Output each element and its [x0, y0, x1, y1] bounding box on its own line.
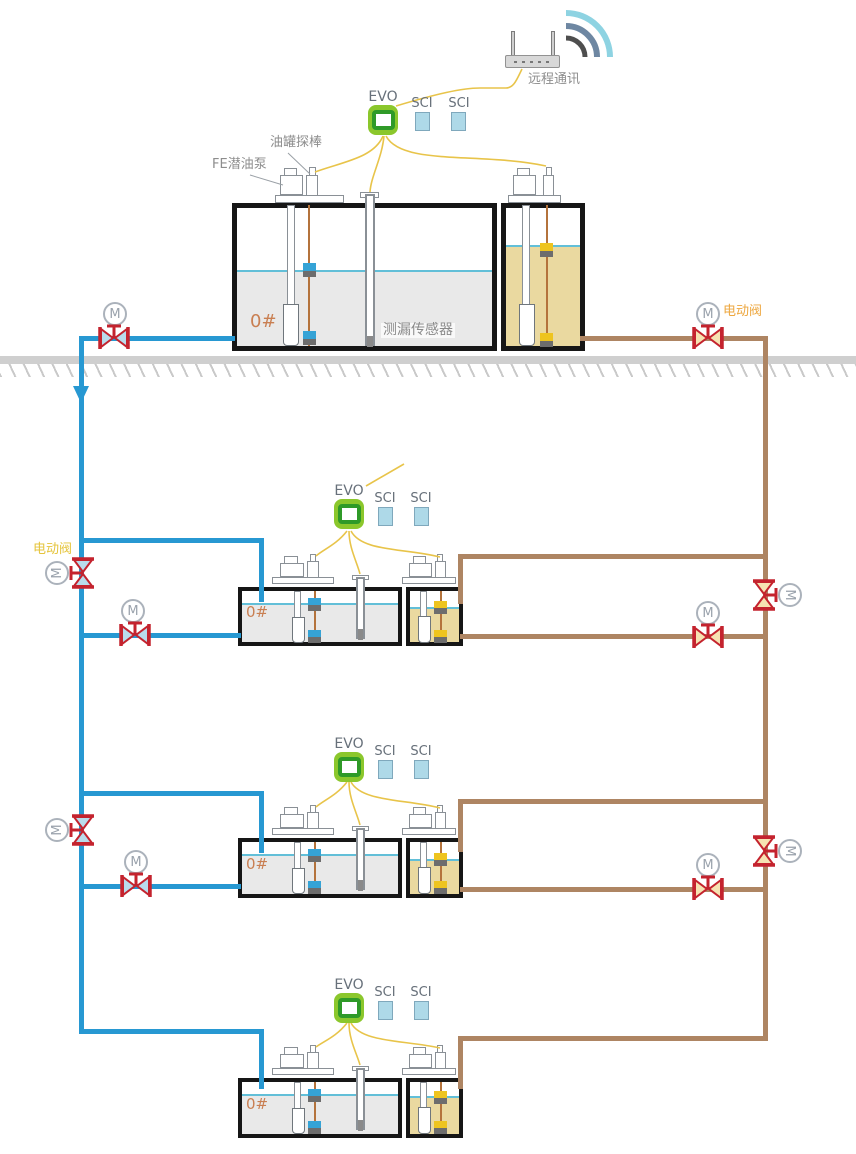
sci-module	[451, 112, 466, 131]
electric-valve	[67, 812, 95, 848]
electric-valve	[96, 322, 132, 350]
evo-screen	[338, 504, 361, 524]
evo-controller	[368, 105, 398, 135]
electric-valve	[117, 619, 153, 647]
evo-controller	[334, 993, 364, 1023]
sci-label: SCI	[371, 492, 399, 506]
sci-module	[378, 760, 393, 779]
cable-evo-leak-sensor	[349, 531, 360, 574]
pointer-line-pump	[250, 175, 283, 185]
remote-comm-label: 远程通讯	[528, 73, 580, 87]
electric-valve	[690, 621, 726, 649]
evo-label: EVO	[332, 737, 366, 752]
electric-valve-label-right: 电动阀	[723, 305, 762, 319]
cable-evo-probe-left	[316, 531, 347, 556]
motor-actuator: M	[45, 561, 69, 585]
cable-evo-leak-sensor	[349, 782, 360, 825]
sci-module	[414, 507, 429, 526]
wifi-arc-inner	[566, 38, 585, 57]
evo-controller	[334, 752, 364, 782]
sci-label: SCI	[371, 745, 399, 759]
evo-label: EVO	[366, 90, 400, 105]
electric-valve	[690, 873, 726, 901]
electric-valve	[752, 577, 780, 613]
motor-actuator: M	[45, 818, 69, 842]
tank-probe-label: 油罐探棒	[270, 136, 322, 150]
electric-valve	[118, 870, 154, 898]
electric-valve	[67, 555, 95, 591]
wifi-arc-middle	[566, 26, 597, 57]
cable-overlay	[0, 0, 856, 1154]
fuel-station-monitoring-diagram: 0# 测漏传感器 EVO SCI SCI 油罐探棒 FE潜油泵 远程通讯 0#	[0, 0, 856, 1154]
evo-label: EVO	[332, 978, 366, 993]
electric-valve	[690, 322, 726, 350]
cable-evo-probe-right	[351, 1023, 440, 1048]
sci-module	[414, 760, 429, 779]
leak-sensor-label: 测漏传感器	[381, 323, 455, 338]
evo-controller	[334, 499, 364, 529]
cable-evo-probe-left	[316, 782, 347, 807]
cable-uplink	[366, 464, 404, 486]
sci-module	[378, 507, 393, 526]
electric-valve-label-left: 电动阀	[33, 543, 72, 557]
evo-label: EVO	[332, 484, 366, 499]
sci-label: SCI	[407, 986, 435, 1000]
cable-evo-probe-right	[351, 531, 440, 557]
sci-module	[415, 112, 430, 131]
cable-evo-probe-right	[386, 136, 546, 166]
sci-label: SCI	[407, 745, 435, 759]
sci-label: SCI	[371, 986, 399, 1000]
cable-evo-probe-left	[315, 136, 383, 172]
evo-screen	[372, 110, 395, 130]
sci-label: SCI	[445, 97, 473, 111]
sci-label: SCI	[408, 97, 436, 111]
motor-actuator: M	[778, 583, 802, 607]
cable-evo-probe-left	[316, 1023, 347, 1047]
cable-evo-leak-sensor	[349, 1023, 360, 1065]
submersible-pump-label: FE潜油泵	[212, 158, 267, 172]
electric-valve	[752, 833, 780, 869]
cable-evo-probe-right	[351, 782, 440, 808]
sci-label: SCI	[407, 492, 435, 506]
pointer-line-tank-probe	[288, 153, 310, 174]
sci-module	[378, 1001, 393, 1020]
evo-screen	[338, 998, 361, 1018]
sci-module	[414, 1001, 429, 1020]
motor-actuator: M	[778, 839, 802, 863]
evo-screen	[338, 757, 361, 777]
